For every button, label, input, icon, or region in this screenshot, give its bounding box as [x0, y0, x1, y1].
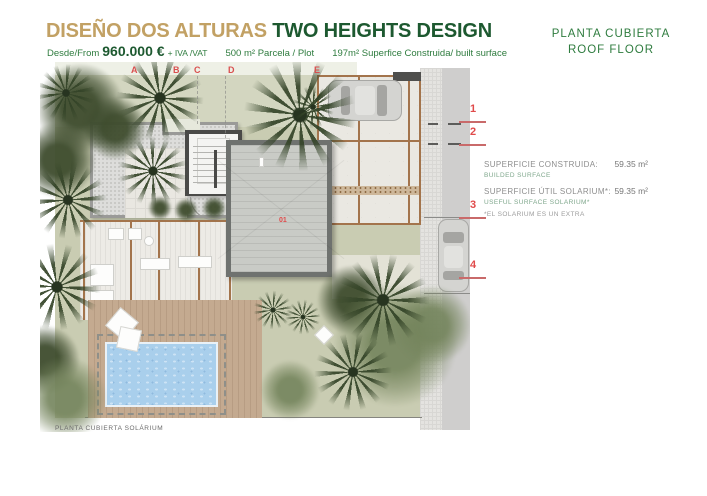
hedge-bush — [174, 198, 198, 222]
gravel-strip — [318, 186, 419, 195]
outdoor-table — [140, 258, 170, 270]
price-value: 960.000 € — [102, 43, 164, 59]
wall-segment — [393, 72, 421, 81]
plan-name-spanish: PLANTA CUBIERTA — [540, 26, 682, 42]
grid-number-line — [459, 217, 486, 219]
surface-solarium-sublabel: USEFUL SURFACE SOLARIUM* — [484, 199, 590, 206]
surface-solarium-value: 59.35 m² — [598, 186, 648, 196]
surface-solarium-label: SUPERFICIE ÚTIL SOLARIUM*: — [484, 187, 611, 196]
pergola-beam — [80, 220, 232, 222]
grid-number-1: 1 — [463, 103, 483, 115]
surface-built-label: SUPERFICIE CONSTRUIDA: — [484, 160, 598, 169]
built-size: 197m² Superfice Construida/ built surfac… — [332, 48, 507, 59]
area-label: 01 — [279, 217, 287, 224]
grid-number-2: 2 — [463, 126, 483, 138]
grid-letter-d: D — [228, 65, 235, 75]
grid-line — [197, 76, 198, 124]
grid-number-line — [459, 144, 486, 146]
plan-caption: PLANTA CUBIERTA SOLÁRIUM — [55, 425, 163, 432]
surface-built-value: 59.35 m² — [598, 159, 648, 169]
price-and-specs: Desde/From 960.000 € + IVA /VAT 500 m² P… — [47, 43, 507, 59]
title-spanish: DISEÑO DOS ALTURAS — [46, 20, 267, 42]
grid-line — [225, 76, 226, 138]
grid-number-line — [459, 277, 486, 279]
pergola-beam — [408, 77, 410, 223]
grid-letter-c: C — [194, 65, 201, 75]
ceiling-fan-icon — [144, 236, 154, 246]
plan-name-english: ROOF FLOOR — [540, 42, 682, 58]
outdoor-table — [178, 256, 212, 268]
parked-car-street — [438, 219, 469, 292]
floor-plan: 01 A B C D E — [40, 62, 470, 432]
road-marking — [428, 123, 438, 125]
outdoor-furniture — [128, 228, 142, 240]
swimming-pool — [105, 342, 218, 407]
hedge-bush — [202, 196, 226, 220]
palm-tree — [291, 85, 335, 129]
surface-built-sublabel: BUILDED SURFACE — [484, 172, 551, 179]
solarium-footnote: *EL SOLARIUM ES UN EXTRA — [484, 211, 585, 218]
brochure-page: { "header": { "title_es": "DISEÑO DOS AL… — [0, 0, 707, 496]
plot-size: 500 m² Parcela / Plot — [225, 48, 314, 59]
grid-number-line — [459, 121, 486, 123]
grid-letter-a: A — [131, 65, 138, 75]
grid-number-3: 3 — [463, 199, 483, 211]
road-marking — [428, 143, 438, 145]
outdoor-furniture — [108, 228, 124, 240]
plan-name: PLANTA CUBIERTA ROOF FLOOR — [540, 26, 682, 58]
page-title: DISEÑO DOS ALTURAS TWO HEIGHTS DESIGN — [46, 20, 492, 43]
stair-stringer — [214, 150, 217, 188]
grid-number-4: 4 — [463, 259, 483, 271]
from-label: Desde/From — [47, 48, 99, 59]
sun-lounger — [116, 326, 142, 352]
grid-letter-e: E — [314, 65, 320, 75]
title-english: TWO HEIGHTS DESIGN — [272, 20, 492, 42]
tree-canopy — [260, 360, 320, 420]
vat-label: + IVA /VAT — [168, 48, 208, 58]
road-marking — [448, 123, 461, 125]
grid-letter-b: B — [173, 65, 180, 75]
